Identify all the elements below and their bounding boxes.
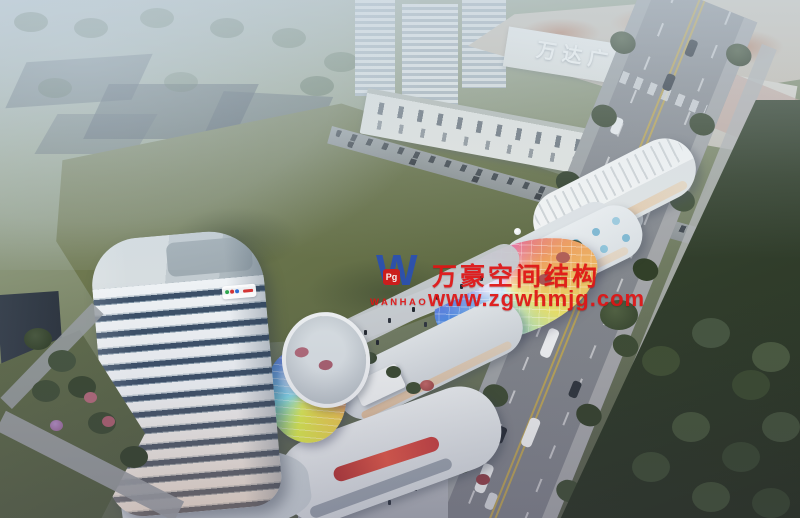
white-umbrellas bbox=[514, 228, 521, 235]
watermark-logo-badge: Pg bbox=[383, 269, 400, 285]
residential-tower bbox=[355, 0, 395, 96]
watermark-badge-text: Pg bbox=[386, 272, 398, 282]
lilac-blossom-trees bbox=[50, 420, 63, 431]
logo-red-dash bbox=[243, 289, 253, 293]
residential-tower bbox=[402, 4, 458, 106]
haze-treetops bbox=[14, 12, 48, 32]
watermark-logo: W Pg WANHAO bbox=[370, 255, 428, 315]
crosswalk bbox=[619, 71, 708, 116]
autumn-trees bbox=[420, 380, 434, 391]
watermark: W Pg WANHAO 万豪空间结构 www.zgwhmjg.com bbox=[370, 255, 600, 319]
watermark-website: www.zgwhmjg.com bbox=[428, 286, 645, 312]
logo-color-dots bbox=[225, 290, 229, 294]
watermark-wordmark: WANHAO bbox=[370, 297, 428, 308]
rendering-scene: 万达广场 bbox=[0, 0, 800, 518]
corner-trees bbox=[24, 328, 52, 350]
terrace-flowers bbox=[294, 346, 309, 358]
